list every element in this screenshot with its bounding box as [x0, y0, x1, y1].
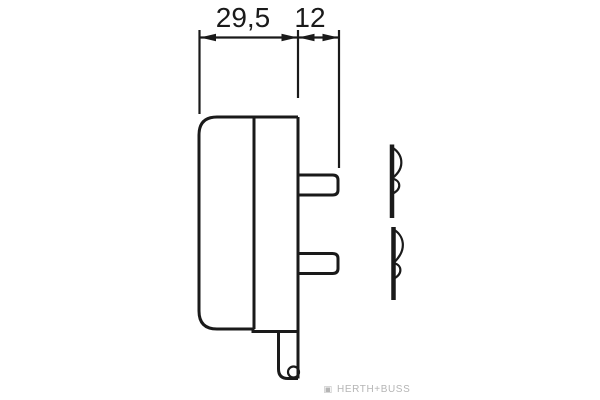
arrowhead-middle-left-icon: [299, 34, 315, 41]
arrowhead-right-icon: [323, 34, 339, 41]
upper-connector-pin: [298, 175, 338, 195]
seal-profiles: [392, 145, 403, 301]
herth-buss-logo-icon: ▣: [323, 385, 332, 395]
watermark: ▣ HERTH+BUSS: [323, 384, 410, 395]
lamp-side-view: [199, 117, 338, 379]
dimension-label-pin-depth: 12: [294, 2, 325, 33]
seal-profile-bottom: [394, 227, 403, 300]
technical-drawing-canvas: 29,5 12: [0, 0, 600, 400]
arrowhead-middle-right-icon: [282, 34, 298, 41]
side-marker-lamp-drawing: 29,5 12: [0, 0, 600, 400]
dimension-annotation: 29,5 12: [200, 2, 340, 168]
watermark-text: HERTH+BUSS: [337, 384, 410, 395]
dimension-label-total-width: 29,5: [216, 2, 271, 33]
arrowhead-left-icon: [200, 34, 216, 41]
lower-connector-pin: [298, 254, 338, 274]
lamp-housing-outline: [199, 117, 298, 332]
seal-profile-top: [392, 145, 401, 219]
